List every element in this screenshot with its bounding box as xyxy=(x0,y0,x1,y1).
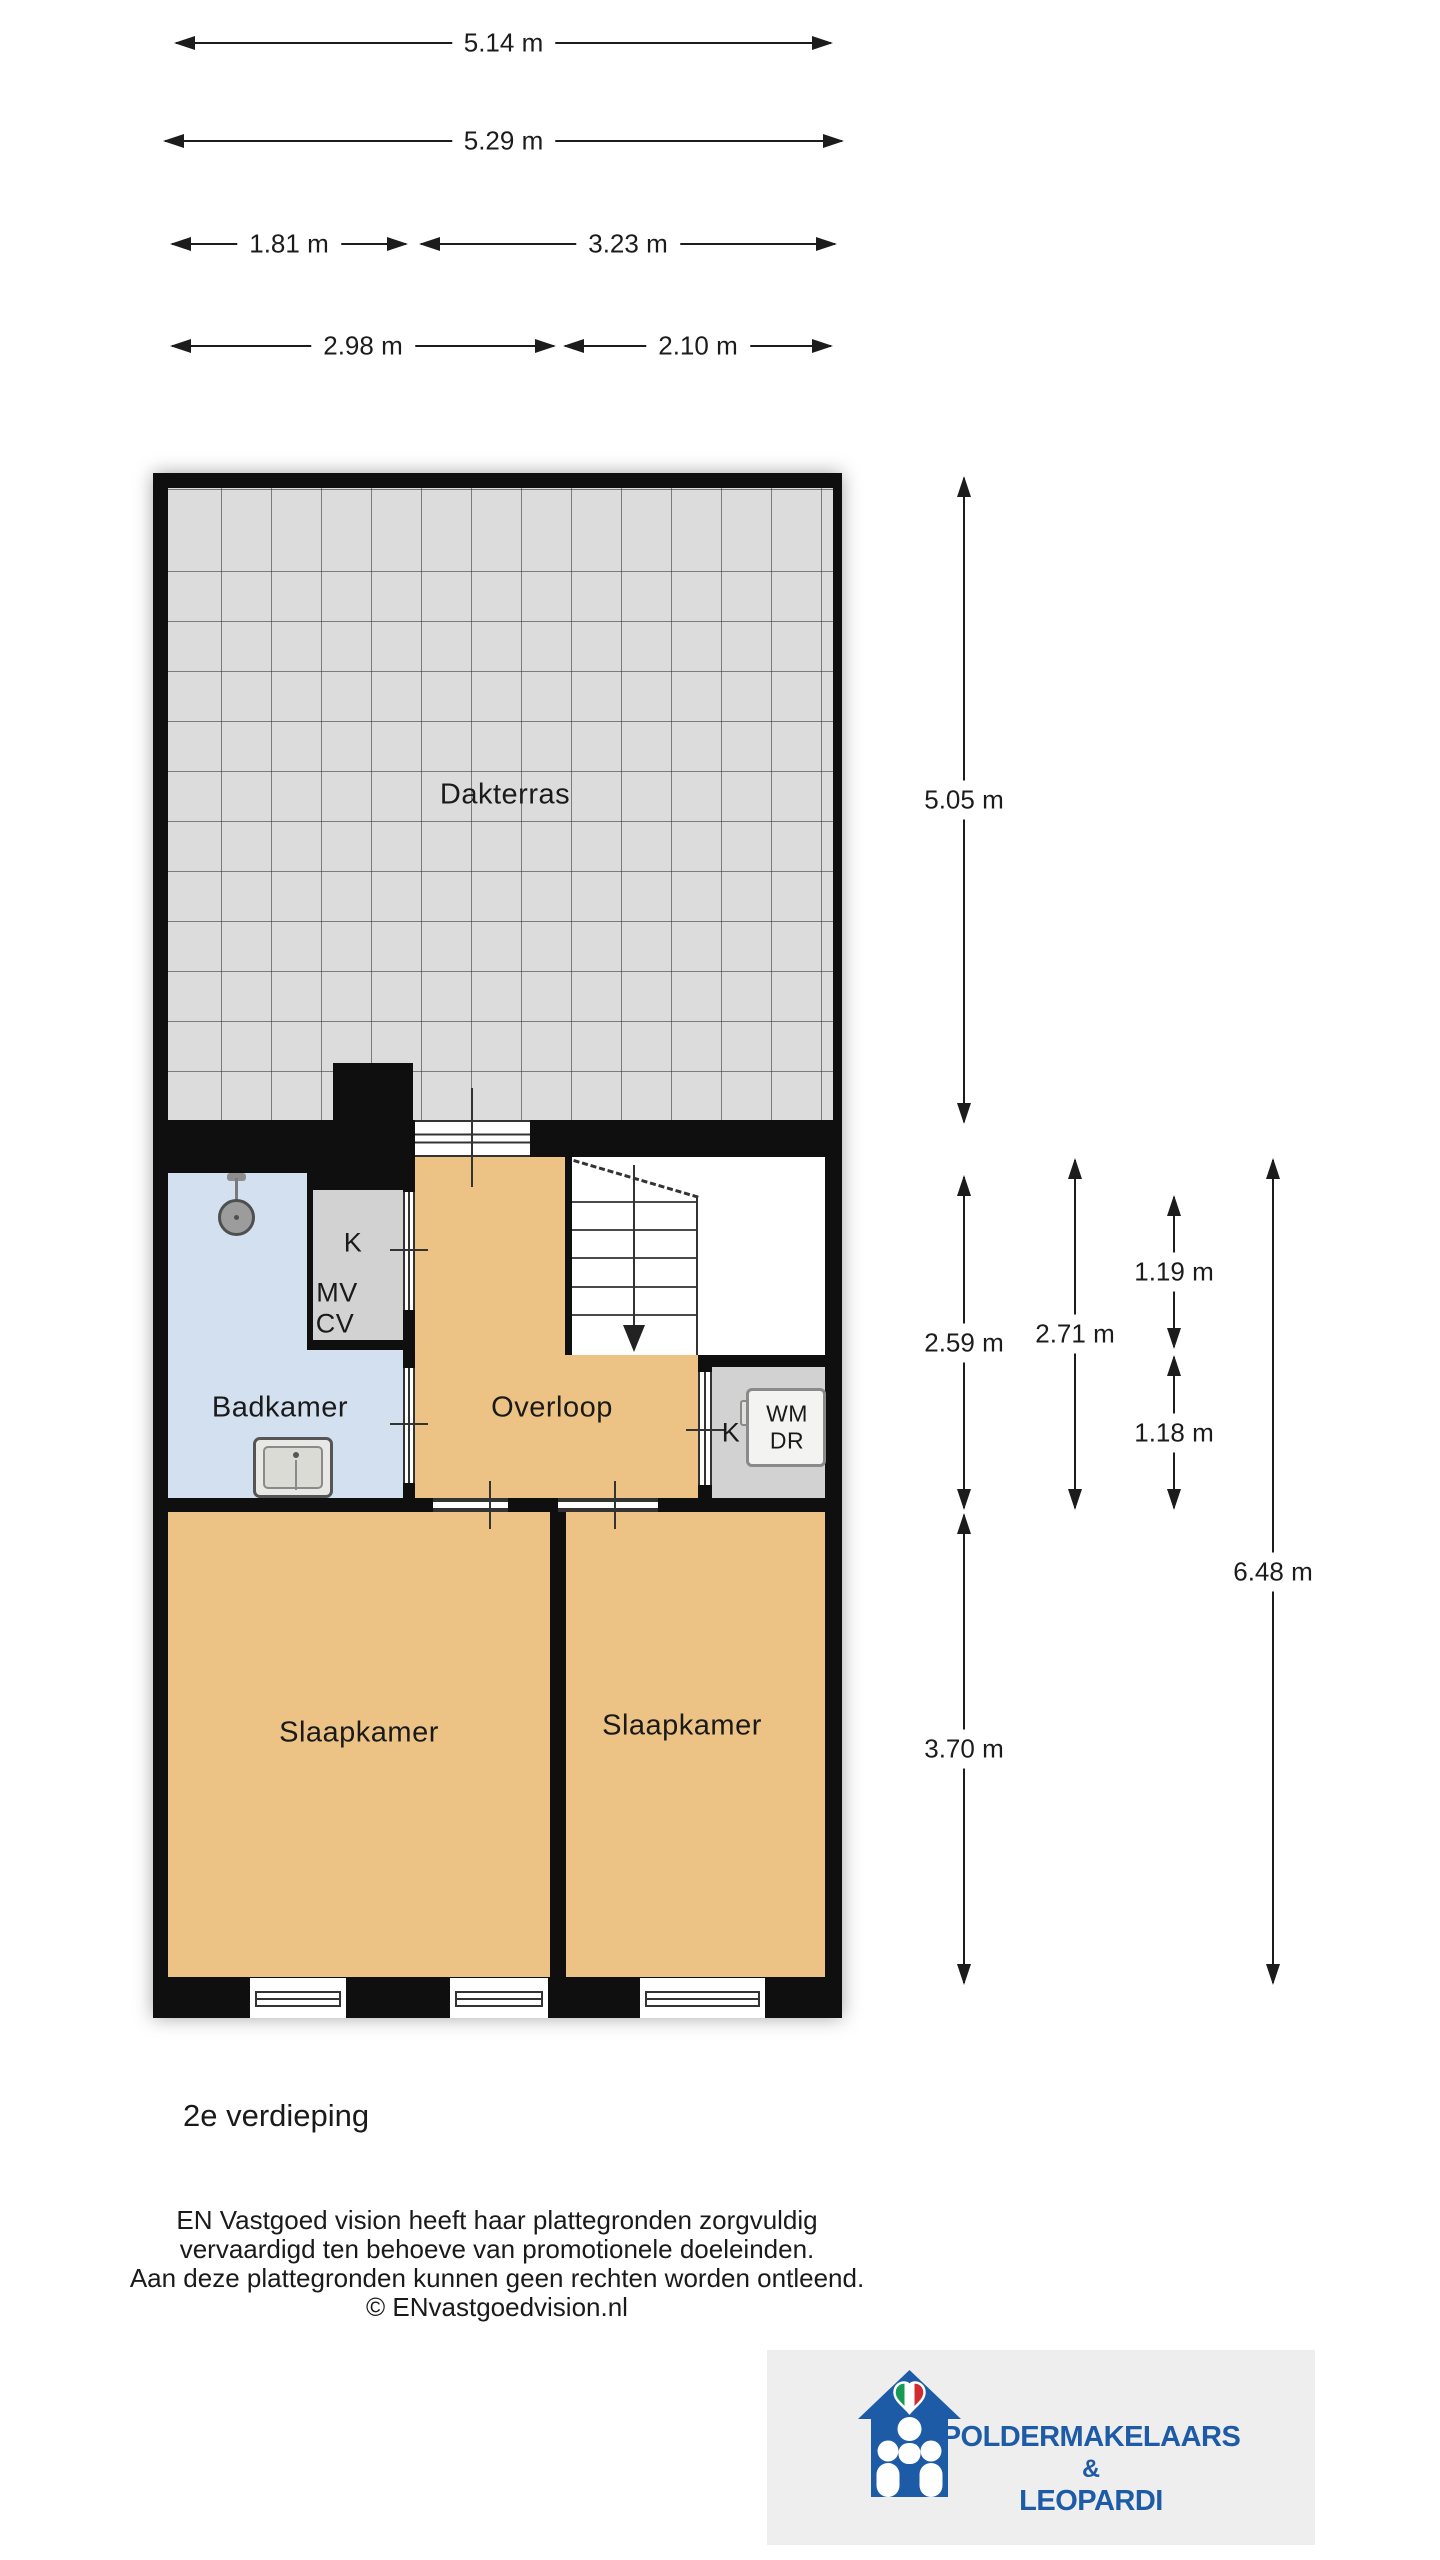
wall-left xyxy=(153,473,168,2018)
arrowhead-up-icon xyxy=(957,1513,971,1534)
arrowhead-down-icon xyxy=(957,1489,971,1510)
disclaimer-line-2: vervaardigd ten behoeve van promotionele… xyxy=(130,2235,864,2264)
chimney-block xyxy=(333,1063,413,1120)
arrowhead-down-icon xyxy=(957,1964,971,1985)
closet-label-cv: CV xyxy=(316,1309,355,1340)
wall-right-upper xyxy=(833,473,842,1120)
shower-head-dot xyxy=(234,1215,239,1220)
dim-width-bottom-right: 2.10 m xyxy=(565,345,831,347)
dim-label: 2.71 m xyxy=(1026,1315,1124,1354)
dim-label: 5.29 m xyxy=(452,126,556,157)
dim-mid-height: 2.71 m xyxy=(1074,1160,1076,1508)
wall-bedroom-divider xyxy=(550,1512,566,1977)
door-closet-tick xyxy=(390,1249,428,1251)
sink-faucet xyxy=(293,1452,299,1458)
arrowhead-up-icon xyxy=(957,1175,971,1196)
arrowhead-up-icon xyxy=(1266,1158,1280,1179)
window-slaapkamer-left xyxy=(250,1978,346,2018)
door-slaapkamer-right xyxy=(558,1498,658,1512)
room-label-badkamer: Badkamer xyxy=(212,1392,348,1425)
window-slaapkamer-mid xyxy=(450,1978,548,2018)
dryer-label: DR xyxy=(770,1428,804,1455)
stair-down-arrow-icon xyxy=(623,1325,645,1352)
closet-label-mv: MV xyxy=(316,1278,358,1309)
dim-label: 2.10 m xyxy=(646,331,750,362)
room-label-slaapkamer-left: Slaapkamer xyxy=(279,1717,439,1750)
window-glass xyxy=(455,1991,543,2007)
disclaimer-text: EN Vastgoed vision heeft haar plattegron… xyxy=(130,2206,864,2322)
dim-label: 1.19 m xyxy=(1125,1253,1223,1292)
wall-closet-bottom xyxy=(307,1340,415,1350)
door-dakterras-swing-line xyxy=(471,1088,473,1187)
dim-label: 3.23 m xyxy=(576,229,680,260)
door-slaapkamer-right-tick xyxy=(614,1481,616,1529)
dim-width-right: 3.23 m xyxy=(421,243,835,245)
dim-width-bottom-left: 2.98 m xyxy=(172,345,554,347)
dim-label: 1.18 m xyxy=(1125,1413,1223,1452)
dim-label: 2.98 m xyxy=(311,331,415,362)
arrowhead-up-icon xyxy=(957,476,971,497)
dim-width-outer: 5.29 m xyxy=(165,140,842,142)
arrowhead-down-icon xyxy=(1266,1964,1280,1985)
arrowhead-up-icon xyxy=(1167,1355,1181,1376)
dim-label: 6.48 m xyxy=(1224,1552,1322,1591)
room-label-overloop: Overloop xyxy=(491,1392,613,1425)
arrowhead-left-icon xyxy=(563,339,584,353)
dim-width-total: 5.14 m xyxy=(176,42,831,44)
dim-bedroom-height: 3.70 m xyxy=(963,1515,965,1983)
disclaimer-line-3: Aan deze plattegronden kunnen geen recht… xyxy=(130,2264,864,2293)
closet-label-k: K xyxy=(344,1228,363,1259)
arrowhead-right-icon xyxy=(812,339,833,353)
arrowhead-down-icon xyxy=(1068,1489,1082,1510)
room-label-slaapkamer-right: Slaapkamer xyxy=(602,1710,762,1743)
door-closet xyxy=(403,1192,415,1310)
sink-drain-line xyxy=(295,1460,297,1490)
wall-badkamer-top xyxy=(168,1157,307,1173)
window-slaapkamer-right xyxy=(640,1978,765,2018)
washer-label: WM xyxy=(766,1401,808,1428)
arrowhead-down-icon xyxy=(1167,1489,1181,1510)
arrowhead-up-icon xyxy=(1167,1195,1181,1216)
door-badkamer xyxy=(403,1368,415,1483)
dim-label: 2.59 m xyxy=(915,1323,1013,1362)
door-badkamer-tick xyxy=(390,1423,428,1425)
floorplan-page: 5.14 m 5.29 m 1.81 m 3.23 m 2.98 m 2.10 … xyxy=(0,0,1440,2560)
dim-width-left: 1.81 m xyxy=(172,243,406,245)
disclaimer-line-4: © ENvastgoedvision.nl xyxy=(130,2293,864,2322)
stair-walk-line xyxy=(633,1165,635,1327)
dim-dakterras-height: 5.05 m xyxy=(963,478,965,1122)
wall-understairs xyxy=(698,1355,825,1367)
dim-total-height: 6.48 m xyxy=(1272,1160,1274,1983)
dim-label: 5.14 m xyxy=(452,28,556,59)
arrowhead-left-icon xyxy=(174,36,195,50)
logo-wordmark: POLDERMAKELAARS & LEOPARDI xyxy=(942,2421,1241,2518)
arrowhead-right-icon xyxy=(812,36,833,50)
wall-stairs-left xyxy=(565,1157,572,1355)
door-slaapkamer-left xyxy=(433,1498,508,1512)
stairwell-floor xyxy=(572,1157,825,1355)
window-glass xyxy=(645,1991,760,2007)
arrowhead-left-icon xyxy=(170,237,191,251)
disclaimer-line-1: EN Vastgoed vision heeft haar plattegron… xyxy=(130,2206,864,2235)
arrowhead-down-icon xyxy=(957,1103,971,1124)
dim-stairs-top: 1.19 m xyxy=(1173,1197,1175,1347)
dim-label: 1.81 m xyxy=(237,229,341,260)
logo-name-bottom: LEOPARDI xyxy=(1019,2485,1163,2518)
arrowhead-left-icon xyxy=(170,339,191,353)
dim-mid-left-height: 2.59 m xyxy=(963,1177,965,1508)
overloop-floor xyxy=(415,1157,565,1498)
arrowhead-right-icon xyxy=(387,237,408,251)
sink-icon xyxy=(253,1437,333,1498)
dim-label: 5.05 m xyxy=(915,781,1013,820)
arrowhead-left-icon xyxy=(163,134,184,148)
dim-stairs-bottom: 1.18 m xyxy=(1173,1357,1175,1508)
window-glass xyxy=(255,1991,341,2007)
wall-closet-top xyxy=(307,1157,415,1190)
arrowhead-left-icon xyxy=(419,237,440,251)
door-utility-tick xyxy=(686,1429,724,1431)
logo-name-top: POLDERMAKELAARS xyxy=(942,2421,1241,2454)
wall-right-lower xyxy=(825,1120,842,2018)
room-label-dakterras: Dakterras xyxy=(440,779,570,812)
wall-top xyxy=(153,473,842,488)
arrowhead-down-icon xyxy=(1167,1328,1181,1349)
utility-label-k: K xyxy=(722,1418,741,1449)
logo-ampersand: & xyxy=(1082,2455,1100,2484)
arrowhead-right-icon xyxy=(816,237,837,251)
arrowhead-right-icon xyxy=(823,134,844,148)
overloop-floor-understairs xyxy=(565,1355,698,1498)
arrowhead-up-icon xyxy=(1068,1158,1082,1179)
slaapkamer-right-floor xyxy=(566,1512,825,1977)
dim-label: 3.70 m xyxy=(915,1730,1013,1769)
stair-right-edge xyxy=(696,1197,698,1355)
floor-title: 2e verdieping xyxy=(183,2098,369,2134)
door-slaapkamer-left-tick xyxy=(489,1481,491,1529)
arrowhead-right-icon xyxy=(535,339,556,353)
